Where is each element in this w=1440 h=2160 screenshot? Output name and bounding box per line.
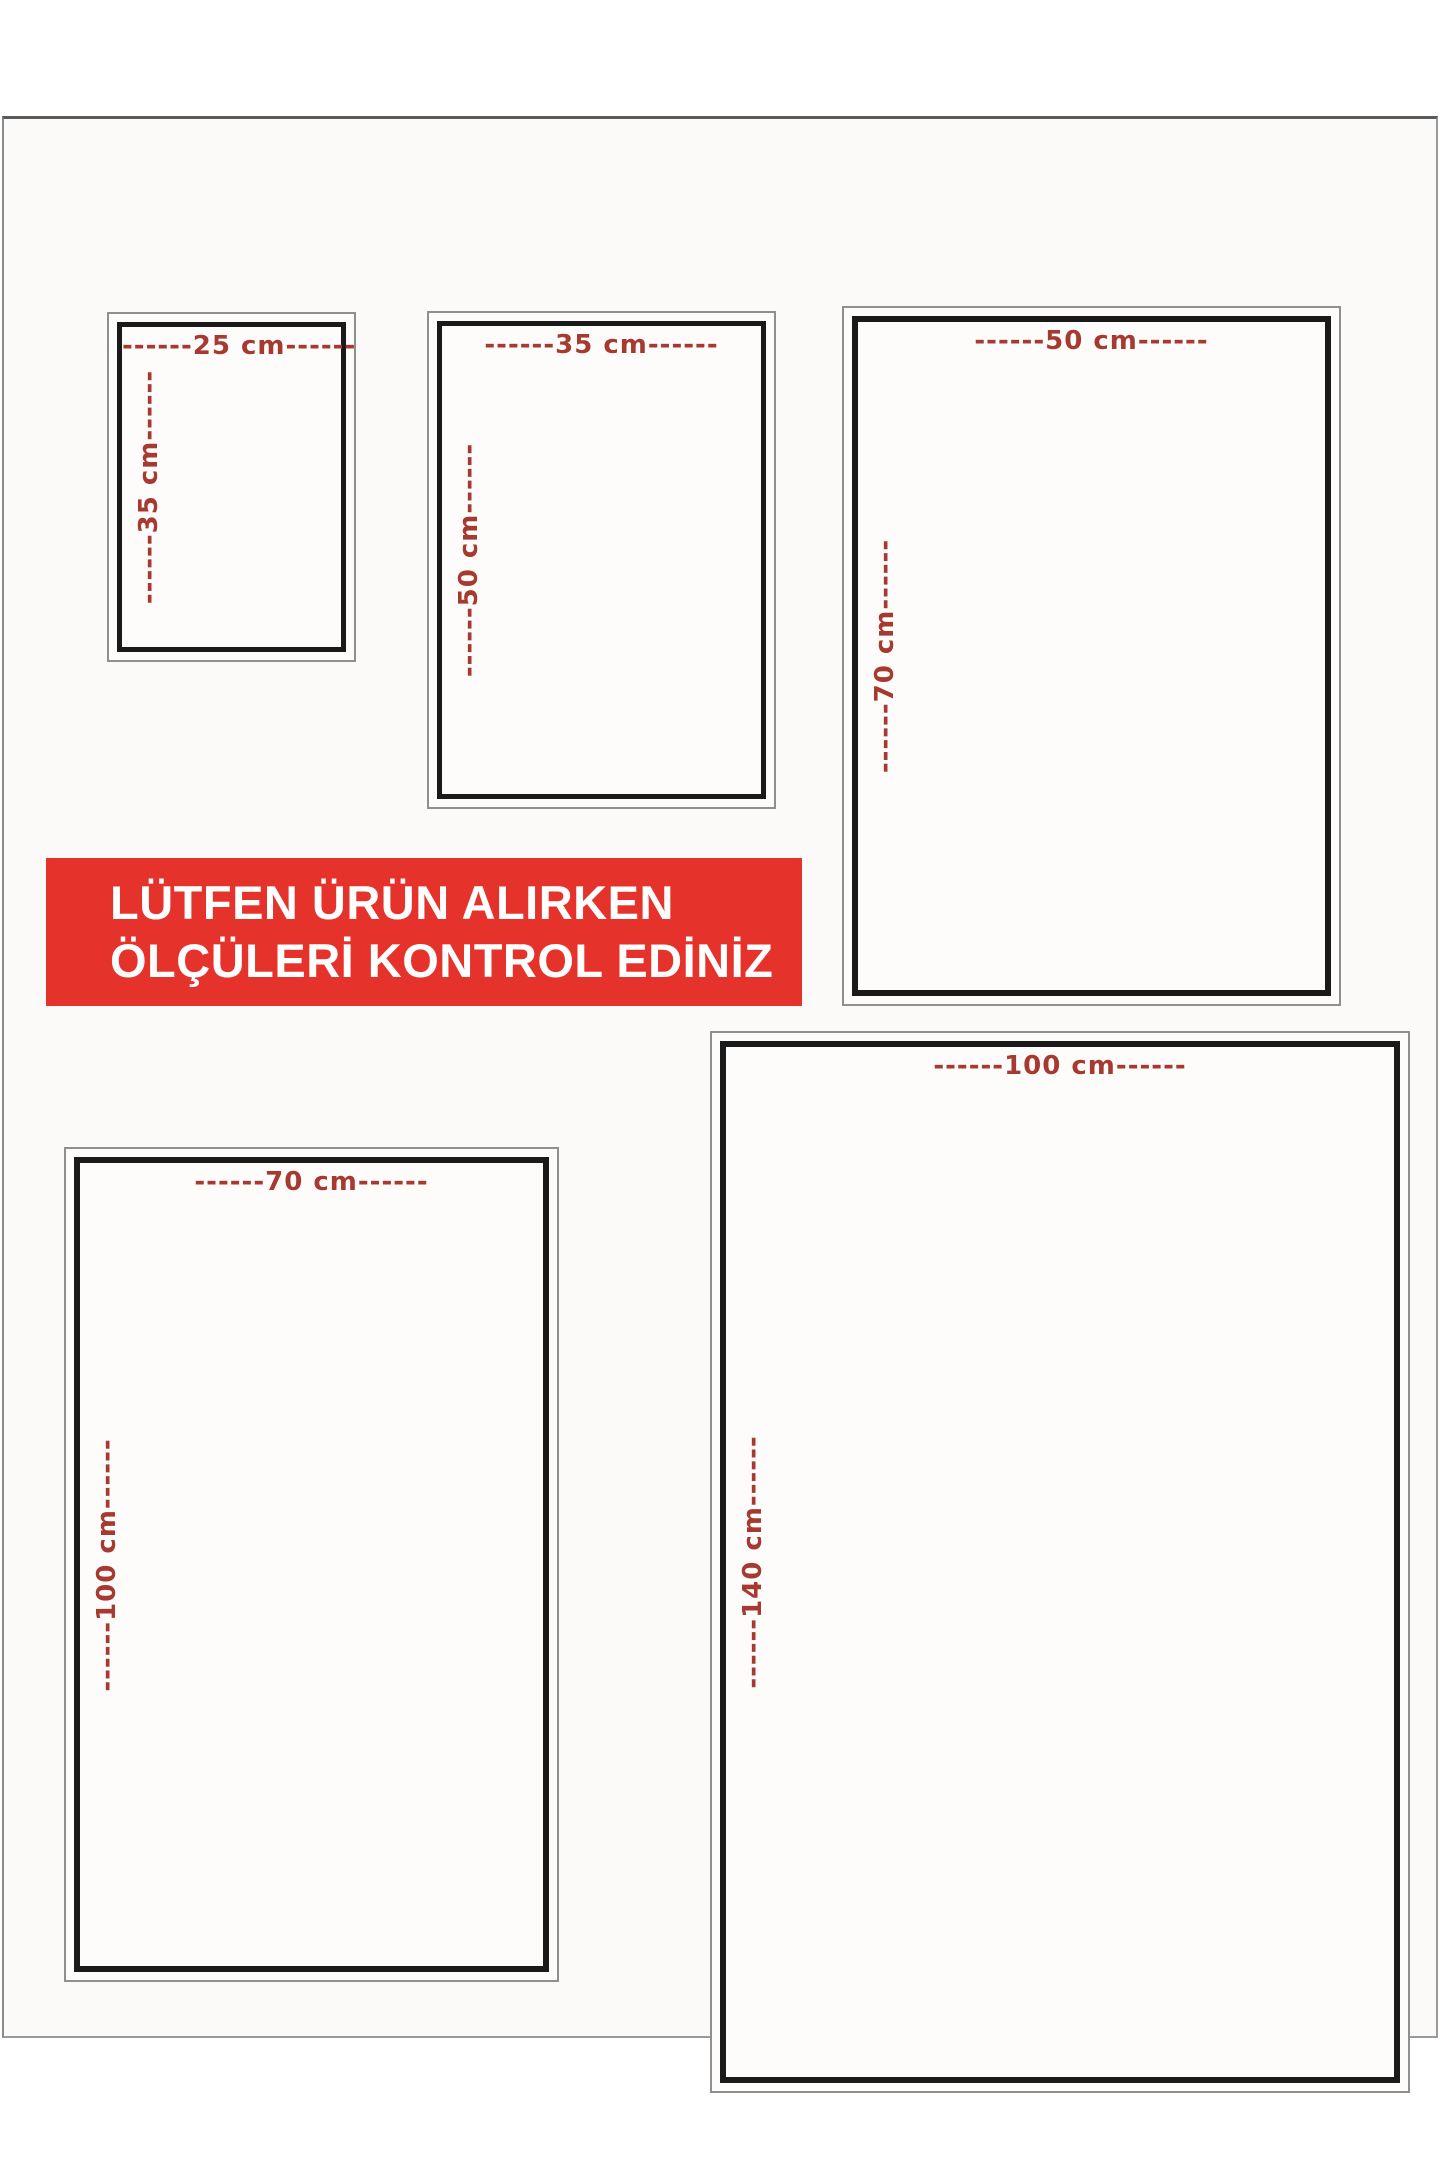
size-chart-photo: ------25 cm------ ------35 cm------ ----… (2, 116, 1438, 2038)
width-dimension-label-35: ------35 cm------ (442, 330, 761, 360)
size-box-35x50: ------35 cm------ ------50 cm------ (427, 311, 776, 809)
height-dimension-label-35: ------35 cm------ (134, 370, 164, 604)
size-box-70x100: ------70 cm------ ------100 cm------ (64, 1147, 559, 1982)
size-box-35x50-frame: ------35 cm------ ------50 cm------ (437, 321, 766, 799)
page-background: { "page": { "type": "product-size-chart"… (0, 0, 1440, 2160)
height-dimension-label-140: ------140 cm------ (738, 1435, 768, 1688)
notice-banner-line-2: ÖLÇÜLERİ KONTROL EDİNİZ (110, 932, 802, 990)
size-box-25x35: ------25 cm------ ------35 cm------ (107, 312, 356, 662)
size-box-100x140: ------100 cm------ ------140 cm------ (710, 1031, 1410, 2093)
notice-banner: LÜTFEN ÜRÜN ALIRKEN ÖLÇÜLERİ KONTROL EDİ… (46, 858, 802, 1006)
size-box-70x100-frame: ------70 cm------ ------100 cm------ (74, 1157, 549, 1972)
width-dimension-label-50: ------50 cm------ (858, 326, 1325, 356)
height-dimension-label-70: ------70 cm------ (870, 539, 900, 773)
size-box-50x70: ------50 cm------ ------70 cm------ (842, 306, 1341, 1006)
notice-banner-line-1: LÜTFEN ÜRÜN ALIRKEN (110, 874, 802, 932)
height-dimension-label-100: ------100 cm------ (92, 1438, 122, 1691)
size-box-25x35-frame: ------25 cm------ ------35 cm------ (117, 322, 346, 652)
height-dimension-label-50: ------50 cm------ (454, 443, 484, 677)
size-box-100x140-frame: ------100 cm------ ------140 cm------ (720, 1041, 1400, 2083)
width-dimension-label-25: ------25 cm------ (122, 331, 341, 361)
size-box-50x70-frame: ------50 cm------ ------70 cm------ (852, 316, 1331, 996)
width-dimension-label-70: ------70 cm------ (80, 1167, 543, 1197)
width-dimension-label-100: ------100 cm------ (726, 1051, 1394, 1081)
